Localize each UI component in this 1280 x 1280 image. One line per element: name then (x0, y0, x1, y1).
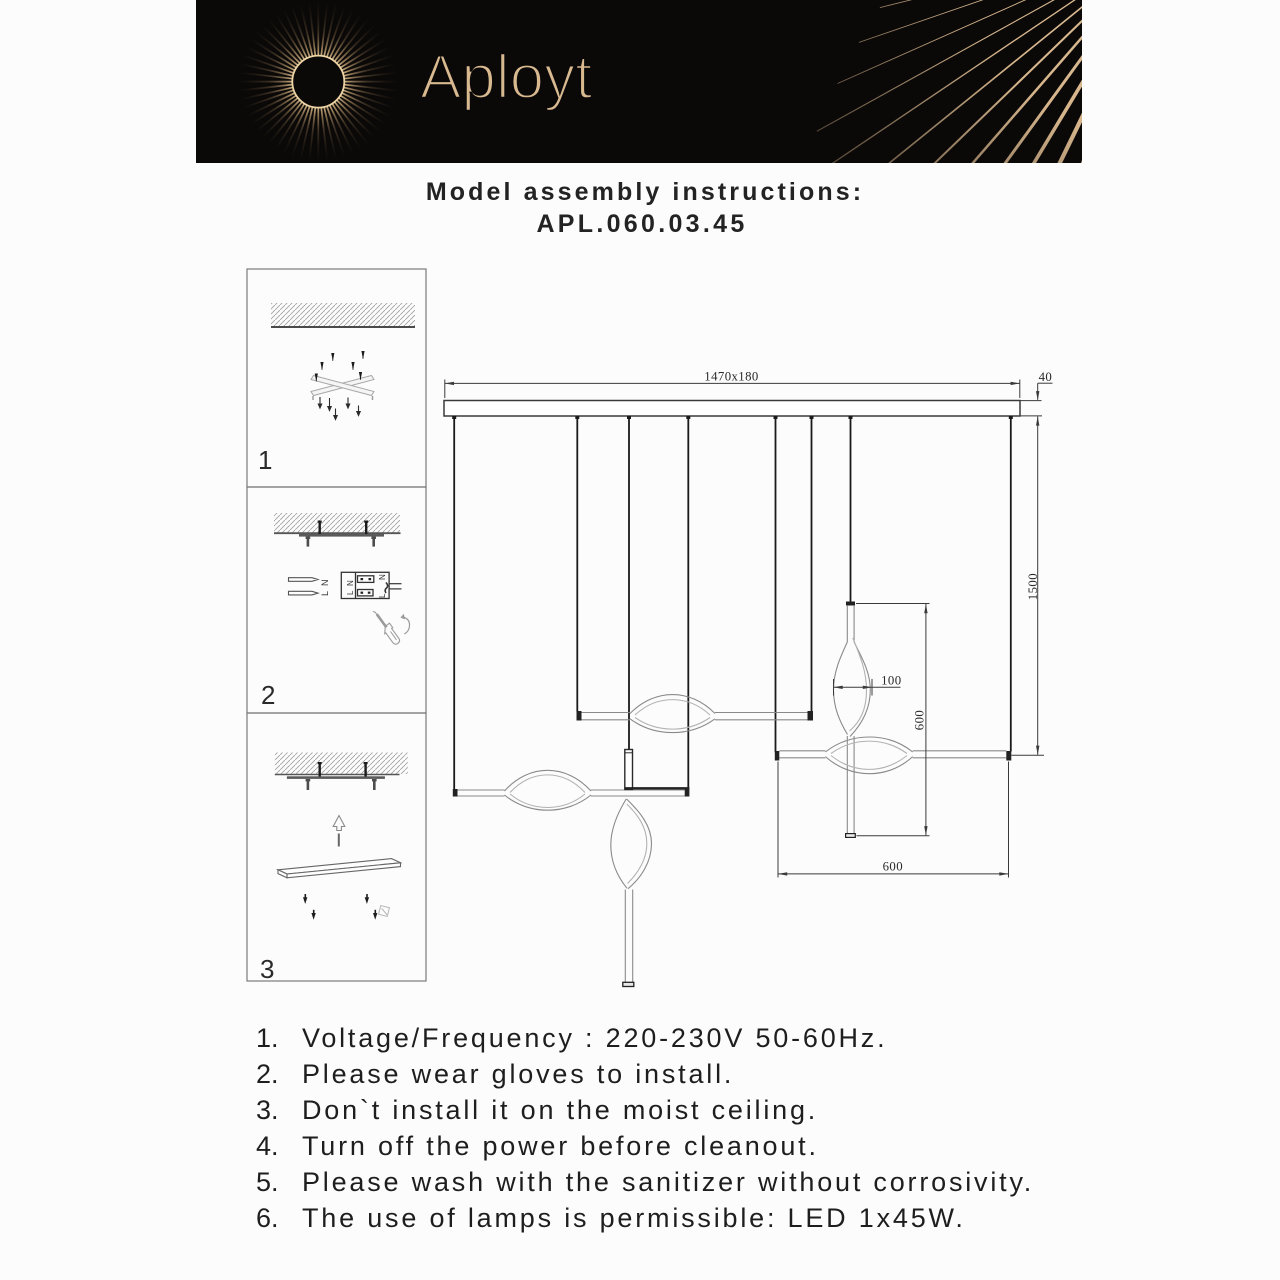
svg-text:L: L (346, 590, 355, 595)
svg-text:N: N (346, 580, 355, 586)
svg-text:L: L (320, 591, 330, 596)
svg-text:600: 600 (912, 710, 926, 730)
svg-text:L: L (378, 593, 387, 598)
svg-text:N: N (320, 580, 330, 587)
svg-text:100: 100 (881, 673, 901, 687)
svg-text:2: 2 (261, 680, 275, 710)
svg-text:N: N (378, 574, 387, 580)
svg-text:3: 3 (260, 954, 274, 984)
svg-text:1470x180: 1470x180 (704, 370, 758, 384)
svg-text:1: 1 (258, 445, 272, 475)
svg-text:1500: 1500 (1026, 573, 1040, 600)
svg-text:600: 600 (883, 860, 903, 874)
svg-text:40: 40 (1039, 370, 1053, 384)
